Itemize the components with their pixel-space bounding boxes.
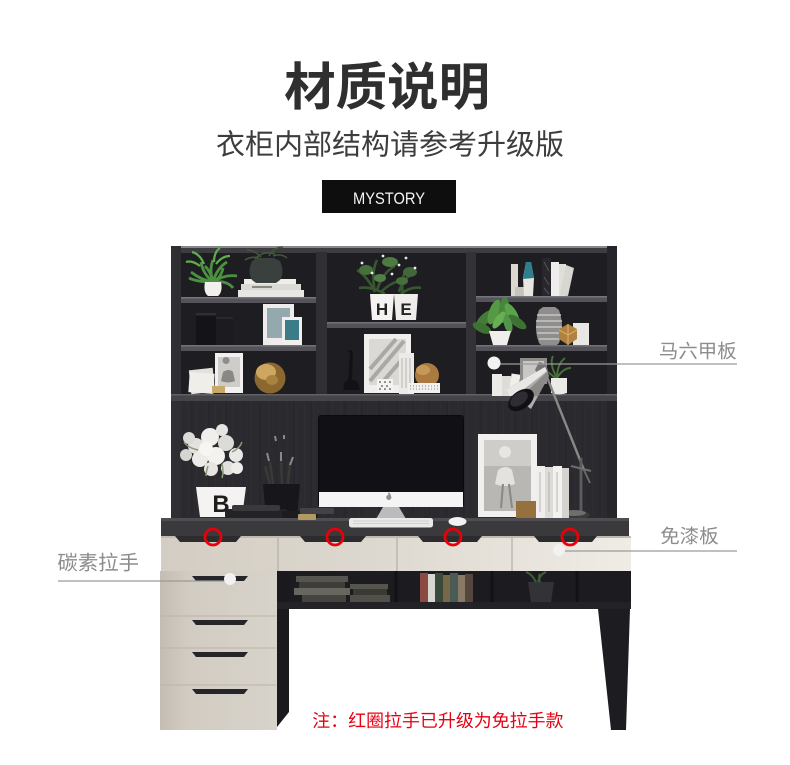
svg-text:E: E: [400, 300, 411, 319]
svg-text:MYSTORY: MYSTORY: [353, 189, 425, 208]
svg-text:H: H: [376, 300, 388, 319]
